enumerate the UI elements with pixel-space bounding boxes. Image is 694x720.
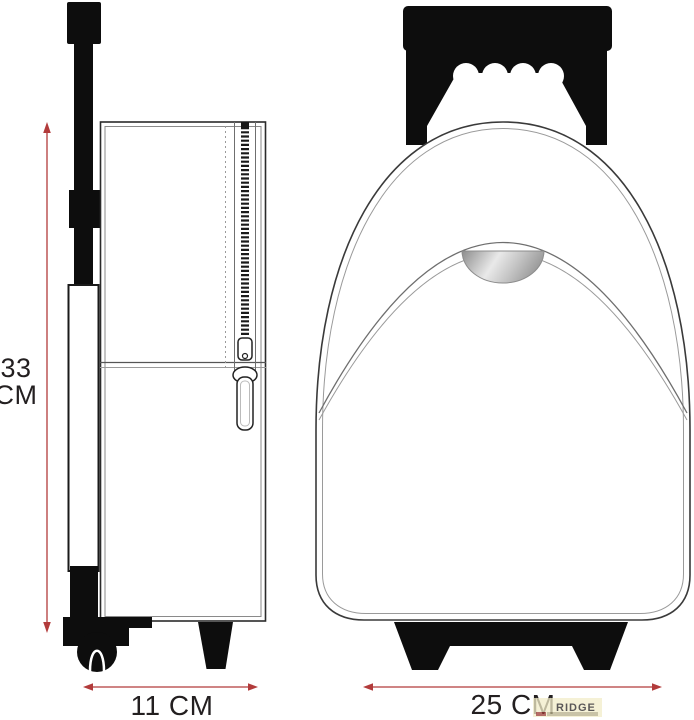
depth-label: 11 CM bbox=[131, 690, 214, 720]
handle-pole-right bbox=[586, 49, 607, 145]
handle-pole-side bbox=[74, 43, 93, 286]
watermark: RIDGE bbox=[533, 698, 602, 717]
dimension-height bbox=[43, 122, 51, 633]
arrow-left-icon bbox=[83, 683, 93, 690]
handle-grip-side bbox=[67, 2, 101, 44]
telescopic-handle-side bbox=[67, 2, 101, 624]
watermark-tagline-strip bbox=[547, 712, 598, 716]
watermark-tagline-accent bbox=[536, 712, 546, 716]
arrow-down-icon bbox=[43, 622, 51, 633]
side-view bbox=[63, 2, 266, 672]
height-label-value: 33 bbox=[0, 353, 31, 383]
wheel-base-front bbox=[394, 622, 628, 670]
handle-pole-left bbox=[406, 49, 427, 145]
front-view bbox=[316, 6, 690, 670]
dimension-diagram: 33 CM 11 CM 25 CM RIDGE bbox=[0, 0, 694, 720]
zipper-pull-strap bbox=[237, 377, 253, 430]
handle-outer-tube-side bbox=[69, 285, 99, 571]
handle-grip-scallop bbox=[538, 63, 564, 89]
bag-body-front bbox=[316, 122, 690, 620]
handle-grip-scallop bbox=[482, 63, 508, 89]
arrow-left-icon bbox=[363, 683, 373, 690]
wheel-side bbox=[63, 617, 152, 672]
arrow-up-icon bbox=[43, 122, 51, 133]
handle-grip-scallop bbox=[453, 63, 479, 89]
handle-grip-scallop bbox=[510, 63, 536, 89]
arrow-right-icon bbox=[652, 683, 662, 690]
rear-foot-side bbox=[198, 622, 233, 669]
zipper-top-stop bbox=[241, 122, 249, 127]
handle-base-housing-side bbox=[70, 566, 98, 624]
arrow-right-icon bbox=[248, 683, 258, 690]
front-panel-outline bbox=[316, 122, 690, 620]
wheel-bracket-arm bbox=[126, 617, 152, 628]
zipper-slider bbox=[238, 338, 252, 360]
handle-joint-side bbox=[69, 190, 101, 228]
handle-underside-web bbox=[427, 49, 586, 126]
diagram-svg: 33 CM 11 CM 25 CM RIDGE bbox=[0, 0, 694, 720]
handle-bar-front bbox=[403, 6, 612, 51]
height-label-unit: CM bbox=[0, 380, 38, 410]
